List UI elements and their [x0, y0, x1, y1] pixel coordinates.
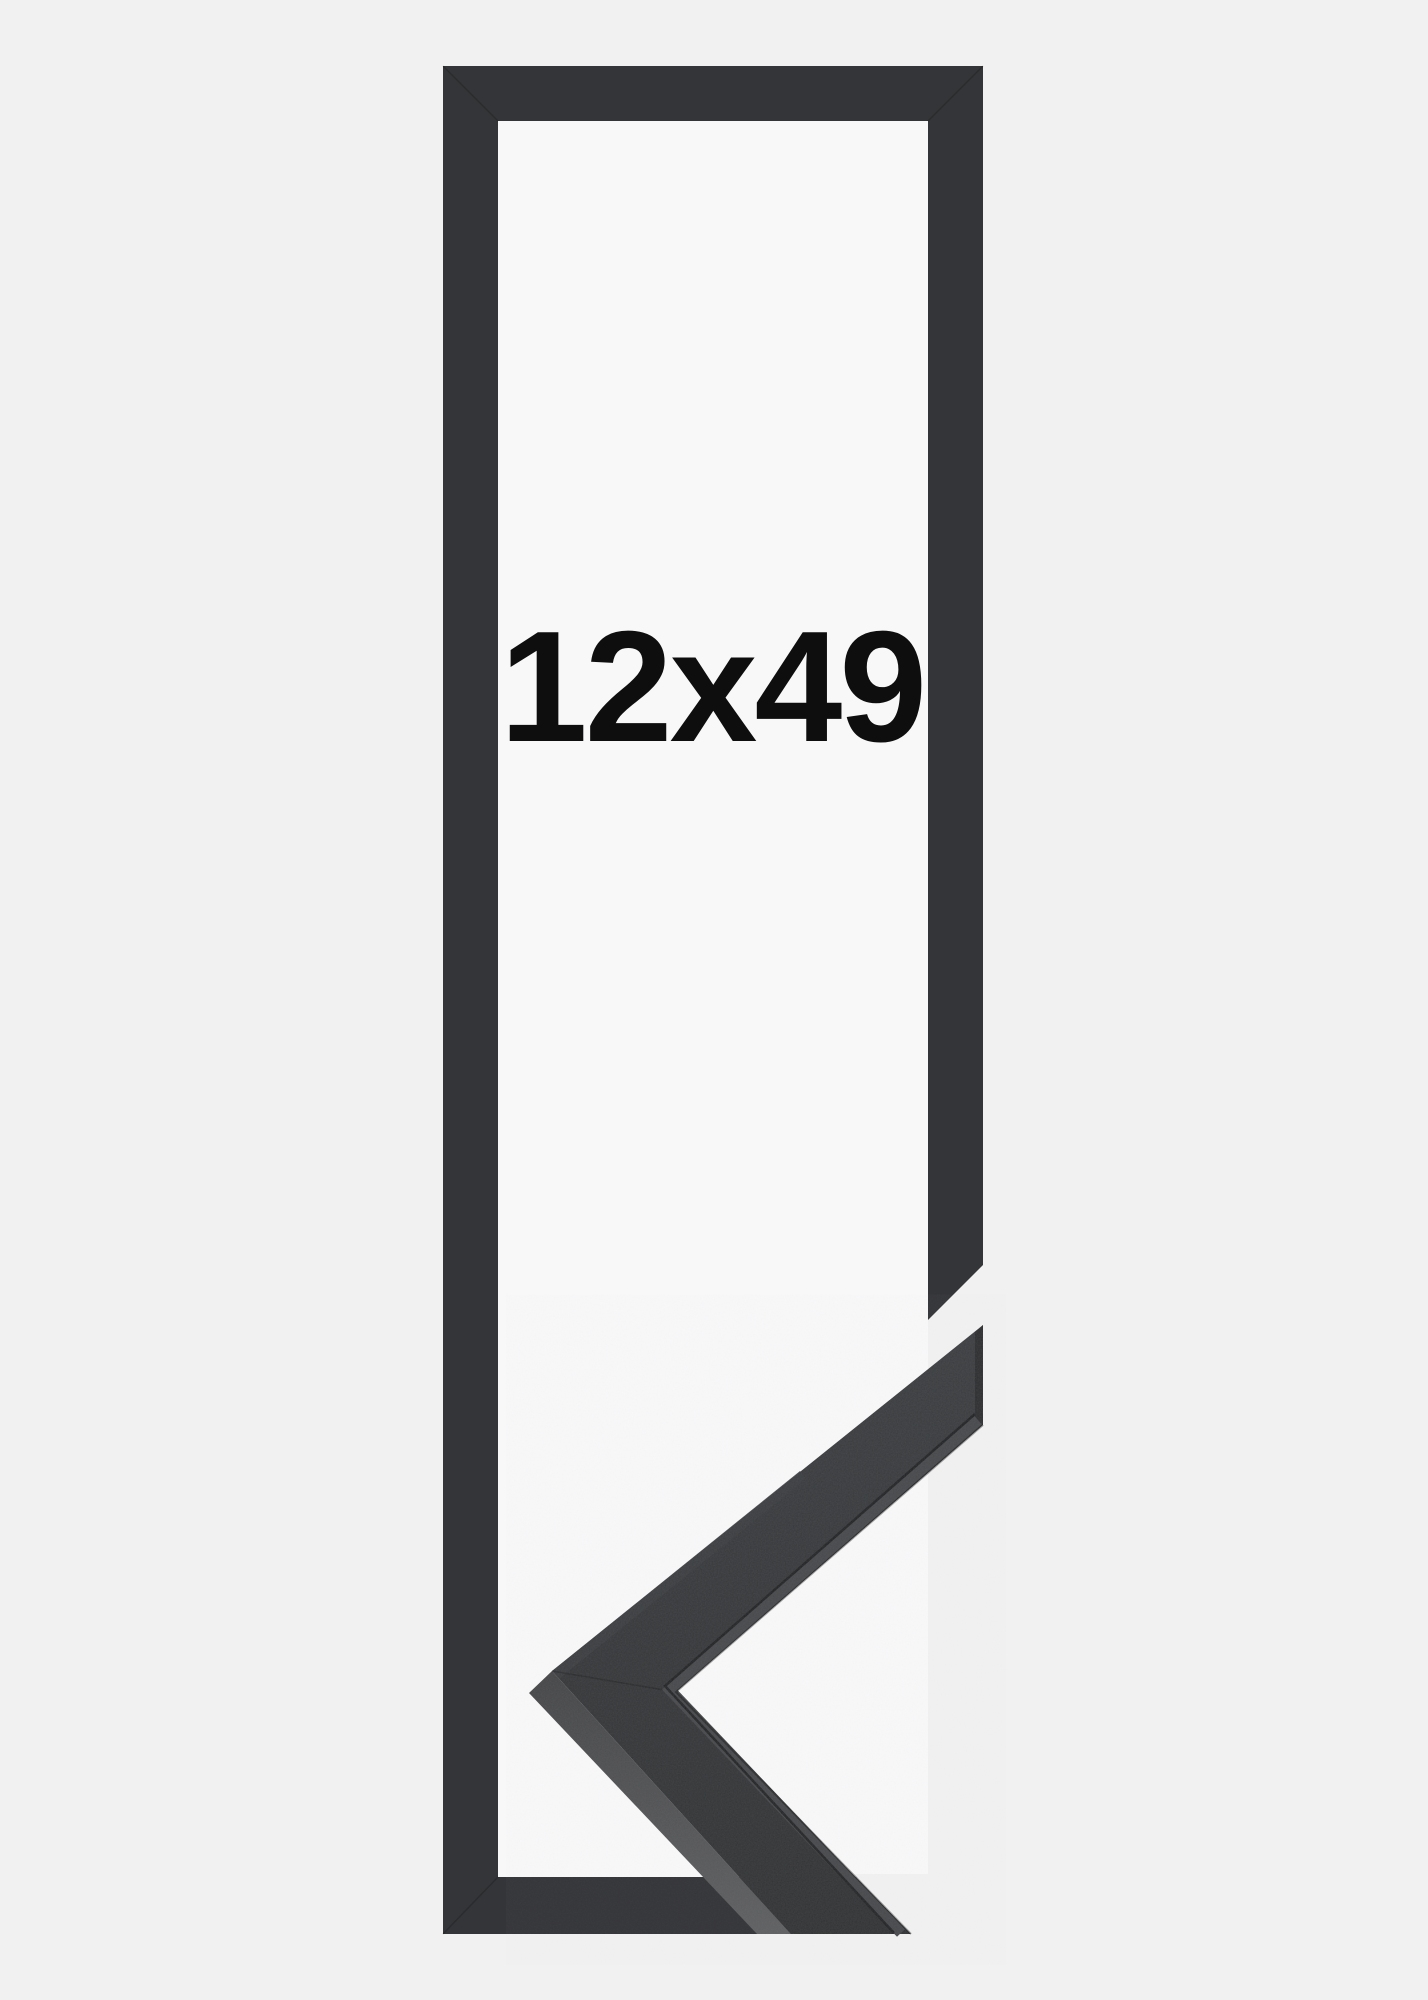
- frame-product-image: 12x49: [0, 0, 1428, 2000]
- size-label: 12x49: [500, 599, 924, 775]
- corner-sample-end-face: [975, 1325, 983, 1425]
- cutout-right-bar: [928, 1400, 995, 1940]
